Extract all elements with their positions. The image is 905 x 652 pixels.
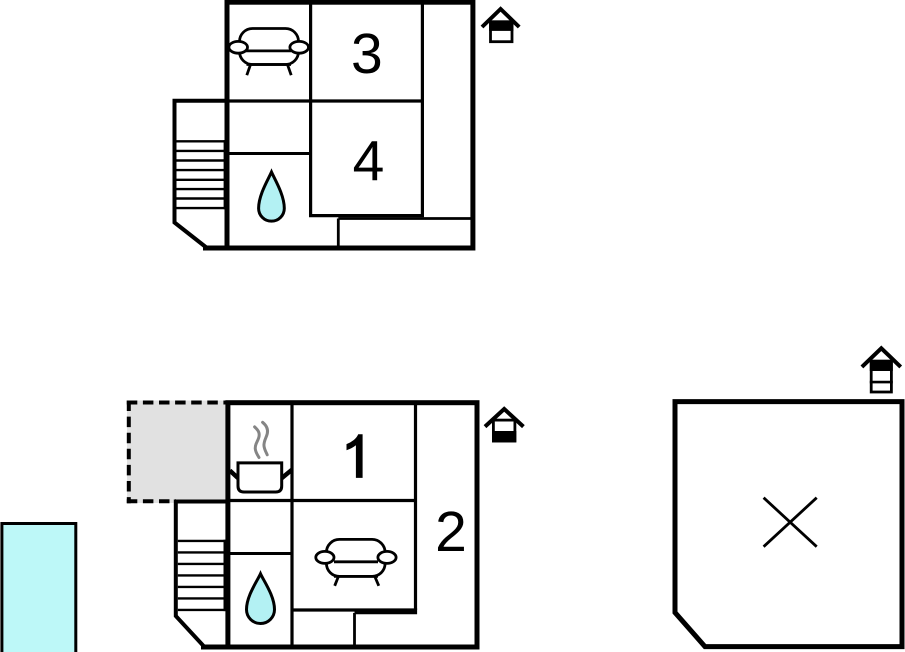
svg-text:2: 2 (435, 500, 467, 564)
svg-text:3: 3 (351, 22, 383, 86)
svg-text:4: 4 (353, 130, 385, 194)
